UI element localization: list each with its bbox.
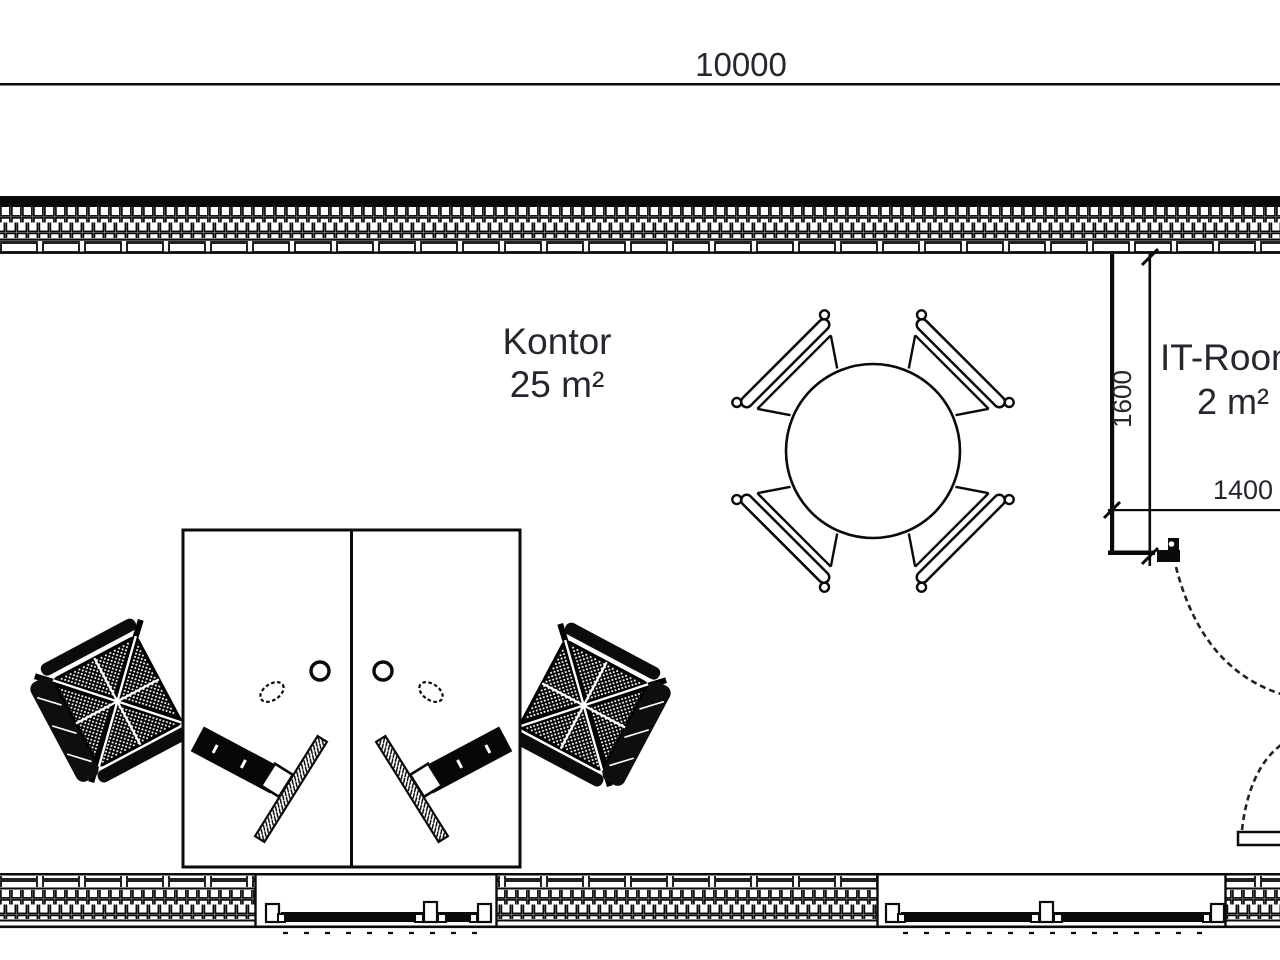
it-room-wall bbox=[1149, 254, 1152, 566]
meeting-table-group bbox=[730, 308, 1015, 593]
floor-plan-page: 10000 Kontor 25 m² 1600 1400 IT-Room 2 m… bbox=[0, 0, 1280, 960]
door-leaf bbox=[1238, 832, 1280, 845]
office-chair-left bbox=[22, 614, 201, 794]
round-table bbox=[786, 364, 960, 538]
room-name-kontor: Kontor bbox=[502, 321, 611, 362]
window bbox=[886, 902, 1224, 933]
exterior-wall-bottom bbox=[0, 873, 1280, 933]
floor-plan-drawing: 10000 Kontor 25 m² 1600 1400 IT-Room 2 m… bbox=[0, 0, 1280, 960]
door-swing-arc bbox=[1242, 745, 1280, 830]
room-label-kontor: Kontor 25 m² bbox=[502, 321, 611, 405]
dimension-label-1600: 1600 bbox=[1107, 370, 1137, 428]
workstation-group bbox=[22, 530, 679, 867]
room-area-it-room: 2 m² bbox=[1197, 381, 1269, 422]
bottom-door bbox=[1238, 745, 1280, 845]
dimension-label-1400: 1400 bbox=[1213, 475, 1273, 505]
door-swing-arc bbox=[1176, 567, 1280, 694]
office-chair-right bbox=[501, 618, 680, 798]
exterior-wall-top bbox=[0, 196, 1280, 254]
wall-segment bbox=[0, 876, 255, 922]
wall-segment bbox=[1226, 876, 1280, 922]
dimension-line bbox=[0, 83, 1280, 86]
it-room-wall-bottom bbox=[1108, 551, 1155, 556]
top-dimension: 10000 bbox=[0, 46, 1280, 86]
wall-segment bbox=[497, 876, 877, 922]
it-room-group: 1600 1400 IT-Room 2 m² bbox=[1104, 249, 1280, 694]
it-room-door bbox=[1157, 538, 1280, 694]
window bbox=[266, 902, 493, 933]
it-room-dimension-line-horizontal bbox=[1108, 509, 1280, 511]
dimension-label-10000: 10000 bbox=[695, 46, 787, 83]
room-area-kontor: 25 m² bbox=[510, 364, 605, 405]
room-name-it-room: IT-Room bbox=[1160, 337, 1280, 378]
